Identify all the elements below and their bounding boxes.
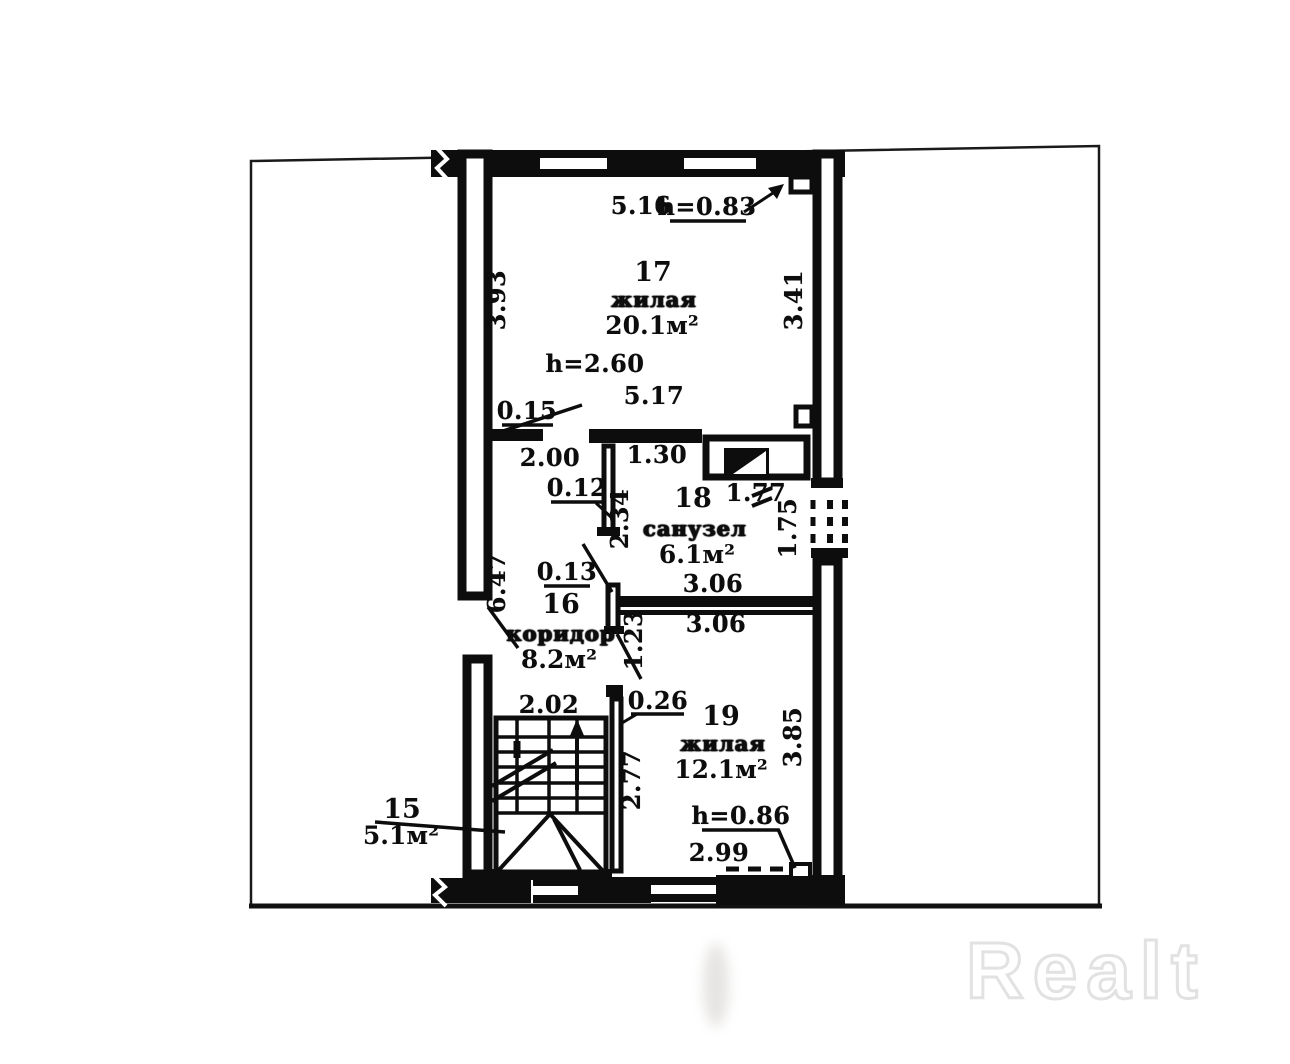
window-top-right (684, 150, 756, 177)
room16-area: 8.2м² (521, 645, 597, 674)
window-bottom-right (651, 877, 716, 902)
bottom-wall-pier-mid (578, 877, 651, 903)
room16-number: 16 (542, 589, 580, 620)
dim-l-wall-stairs: 2.77 (617, 750, 646, 810)
dim-h-window17: h=0.83 (657, 192, 756, 221)
room17-name: жилая (611, 287, 697, 312)
dim-h-ceiling: h=2.60 (545, 349, 644, 378)
room17-number: 17 (634, 257, 672, 288)
dim-h-low: h=0.86 (691, 801, 790, 830)
room19-name: жилая (680, 731, 766, 756)
scan-smudge (703, 943, 729, 1027)
room16-name: коридор (506, 621, 615, 646)
dim-t-stub: 0.15 (497, 396, 557, 425)
staircase (492, 718, 606, 872)
left-wall-stairs (467, 659, 488, 874)
dim-w-stairs: 2.02 (519, 690, 579, 719)
room17-area: 20.1м² (605, 311, 699, 340)
realt-watermark: Realt (966, 926, 1207, 1015)
dim-t-door-wc: 0.13 (537, 557, 597, 586)
dim-w-opening-right: 1.75 (773, 498, 802, 558)
right-wall-lower (817, 561, 838, 901)
right-wall-opening-dashes (813, 500, 845, 550)
floor-plan-svg: 5.16 h=0.83 17 жилая 20.1м² h=2.60 5.17 … (0, 0, 1290, 1064)
floor-plan-page: 5.16 h=0.83 17 жилая 20.1м² h=2.60 5.17 … (0, 0, 1290, 1064)
room19-area: 12.1м² (674, 755, 768, 784)
dim-l-part: 2.34 (605, 489, 634, 549)
wall-277-cap (606, 685, 623, 697)
dim-l-part19: 1.23 (619, 610, 648, 670)
right-wall-cap-top (811, 478, 843, 488)
dim-w-door17: 2.00 (520, 443, 580, 472)
bottom-wall-stub-left (431, 878, 531, 903)
room18-name: санузел (643, 516, 747, 541)
dim-w-low: 2.99 (689, 838, 749, 867)
window-top-left (540, 150, 607, 177)
dim-w17-right: 3.41 (779, 270, 808, 330)
niche-top-right (791, 177, 812, 192)
window-bottom-left (533, 878, 578, 903)
niche-r17-right (796, 407, 812, 426)
right-wall-cap-bottom (811, 548, 848, 558)
vent-block (706, 438, 807, 478)
dim-t-wall-stairs: 0.26 (628, 686, 688, 715)
room18-number: 18 (674, 483, 712, 514)
dim-w-wc-bottom: 3.06 (683, 569, 743, 598)
right-wall-upper (817, 154, 838, 482)
room15-area: 5.1м² (363, 821, 439, 850)
room19-number: 19 (702, 701, 740, 732)
dim-w-wc-top: 1.30 (627, 440, 687, 469)
room18-area: 6.1м² (659, 540, 735, 569)
attic-slope-line (778, 829, 795, 868)
dim-w-r19-top: 3.06 (686, 609, 746, 638)
left-wall-upper (462, 154, 488, 596)
dim-w17-bottom: 5.17 (624, 381, 684, 410)
bottom-wall-pier-right (716, 875, 845, 905)
dim-l-corridor: 6.47 (482, 553, 511, 613)
dim-w17-left: 3.93 (482, 270, 511, 330)
dim-w-r19-right: 3.85 (778, 707, 807, 767)
dim-t-part: 0.12 (547, 473, 607, 502)
top-wall-pier-mid (607, 150, 684, 177)
